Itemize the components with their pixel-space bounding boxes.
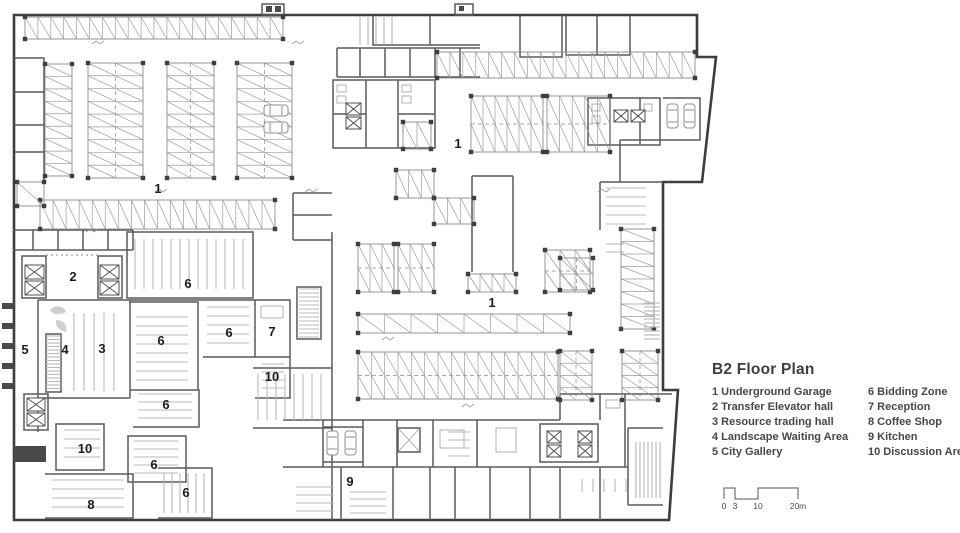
plan-label-2: 2 <box>69 269 76 284</box>
plan-label-8: 8 <box>87 497 94 512</box>
elevator-icon <box>346 103 361 115</box>
car-icon <box>345 431 356 455</box>
scale-bar-ticks: 031020m <box>722 501 806 511</box>
car-icon <box>327 431 338 455</box>
furniture-rows <box>636 442 660 498</box>
elevator-icon <box>578 445 592 457</box>
plan-label-3: 3 <box>98 341 105 356</box>
legend-item-6: 6 Bidding Zone <box>868 385 960 400</box>
elevator-icon <box>614 110 628 122</box>
plan-label-6: 6 <box>157 333 164 348</box>
plan-label-1: 1 <box>454 136 461 151</box>
plan-label-4: 4 <box>61 342 69 357</box>
elevator-icon <box>100 281 119 295</box>
elevator-icon <box>27 413 45 426</box>
legend-item-5: 5 City Gallery <box>712 445 868 460</box>
plan-title: B2 Floor Plan <box>712 361 815 379</box>
scale-bar-line <box>724 488 798 499</box>
car-icon <box>684 104 695 128</box>
elevator-icon <box>547 431 561 443</box>
scale-tick-10: 10 <box>753 501 763 511</box>
plan-label-6: 6 <box>182 485 189 500</box>
legend-item-7: 7 Reception <box>868 400 960 415</box>
plan-label-1: 1 <box>154 181 161 196</box>
legend-item-1: 1 Underground Garage <box>712 385 868 400</box>
elevator-icon <box>25 265 44 279</box>
scale-tick-20m: 20m <box>790 501 807 511</box>
legend-item-4: 4 Landscape Waiting Area <box>712 430 868 445</box>
floor-plan-page: 11123456666667891010 B2 Floor Plan 1 Und… <box>0 0 960 533</box>
scale-tick-0: 0 <box>722 501 727 511</box>
scale-tick-3: 3 <box>733 501 738 511</box>
elevator-icon <box>346 117 361 129</box>
plan-label-10: 10 <box>265 369 279 384</box>
legend-item-10: 10 Discussion Area <box>868 445 960 460</box>
plan-label-6: 6 <box>162 397 169 412</box>
plan-label-6: 6 <box>184 276 191 291</box>
legend-item-3: 3 Resource trading hall <box>712 415 868 430</box>
elevator-icon <box>27 398 45 411</box>
elevator-icon <box>578 431 592 443</box>
plan-label-6: 6 <box>150 457 157 472</box>
car-icon <box>264 122 288 133</box>
legend-column-1: 1 Underground Garage2 Transfer Elevator … <box>712 385 868 460</box>
legend-item-8: 8 Coffee Shop <box>868 415 960 430</box>
legend-item-9: 9 Kitchen <box>868 430 960 445</box>
plan-label-6: 6 <box>225 325 232 340</box>
elevator-icon <box>100 265 119 279</box>
top-vent-boxes <box>262 4 473 15</box>
plan-label-9: 9 <box>346 474 353 489</box>
legend-item-2: 2 Transfer Elevator hall <box>712 400 868 415</box>
scale-bar: 031020m <box>722 485 832 513</box>
plan-label-7: 7 <box>268 324 275 339</box>
plan-label-10: 10 <box>78 441 92 456</box>
car-icon <box>264 105 288 116</box>
legend: 1 Underground Garage2 Transfer Elevator … <box>712 385 960 460</box>
plan-label-5: 5 <box>21 342 28 357</box>
elevator-icon <box>547 445 561 457</box>
car-icon <box>667 104 678 128</box>
legend-column-2: 6 Bidding Zone7 Reception8 Coffee Shop9 … <box>868 385 960 460</box>
elevator-icon <box>25 281 44 295</box>
plan-label-1: 1 <box>488 295 495 310</box>
elevator-icon <box>631 110 645 122</box>
